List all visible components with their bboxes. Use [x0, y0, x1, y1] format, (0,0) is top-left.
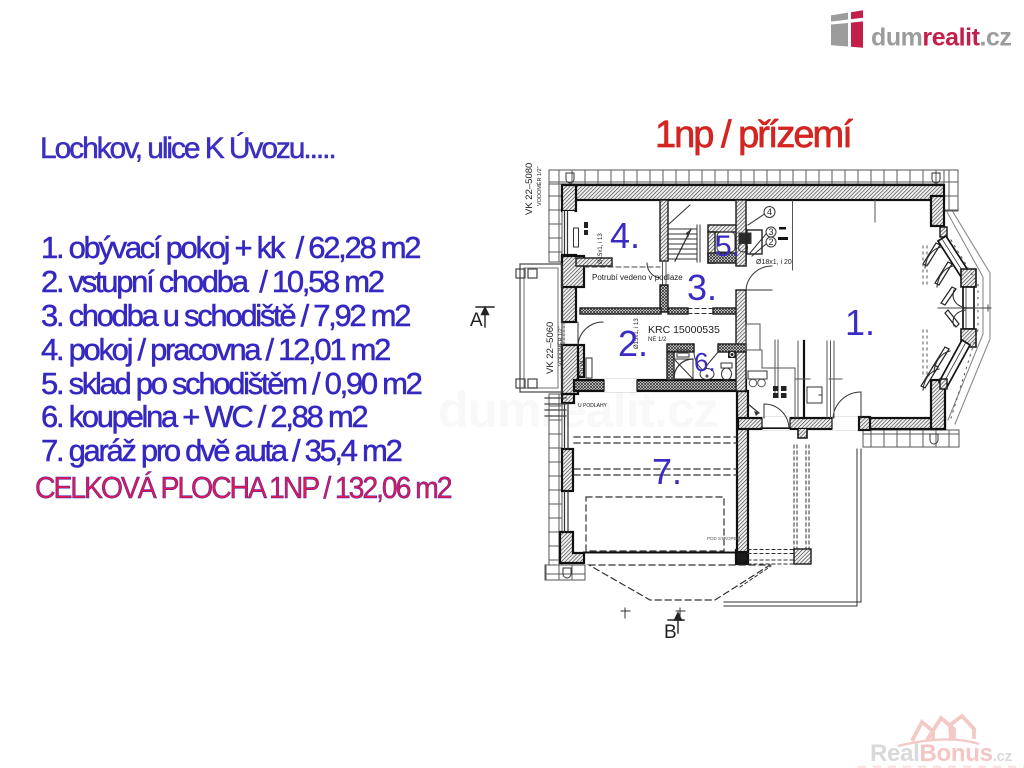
svg-text:1.: 1.: [845, 302, 875, 343]
svg-text:VODOMĚR 1/2": VODOMĚR 1/2": [556, 326, 564, 366]
svg-text:U PODLAHY: U PODLAHY: [578, 403, 608, 409]
svg-text:770 W: 770 W: [580, 360, 586, 378]
svg-text:2.: 2.: [618, 323, 648, 364]
svg-text:KRC 15000535: KRC 15000535: [648, 324, 720, 336]
svg-text:4: 4: [767, 207, 772, 217]
svg-text:2: 2: [768, 237, 773, 247]
svg-text:VK 22–5060: VK 22–5060: [545, 322, 556, 374]
svg-text:B: B: [664, 622, 677, 643]
svg-text:VODOMĚR 1/2": VODOMĚR 1/2": [535, 166, 543, 206]
svg-text:VK 22–5080: VK 22–5080: [524, 163, 535, 215]
svg-text:POD STROPEM: POD STROPEM: [707, 536, 741, 541]
svg-text:6.: 6.: [694, 347, 716, 377]
svg-text:Potrubí vedeno v podlaze: Potrubí vedeno v podlaze: [592, 273, 683, 282]
svg-text:5.: 5.: [715, 230, 740, 263]
svg-text:Ø18x1, i 20: Ø18x1, i 20: [756, 259, 792, 266]
svg-text:3: 3: [768, 227, 773, 237]
svg-text:3.: 3.: [687, 267, 717, 308]
svg-text:RealBonus.cz: RealBonus.cz: [870, 740, 1012, 767]
svg-text:4.: 4.: [610, 215, 640, 256]
svg-text:NE 1/2: NE 1/2: [648, 337, 667, 343]
svg-text:dumrealit.cz: dumrealit.cz: [871, 24, 1011, 52]
svg-text:A: A: [470, 310, 483, 331]
svg-text:7.: 7.: [652, 451, 682, 492]
svg-text:Ø15x1, i 13: Ø15x1, i 13: [598, 233, 604, 264]
